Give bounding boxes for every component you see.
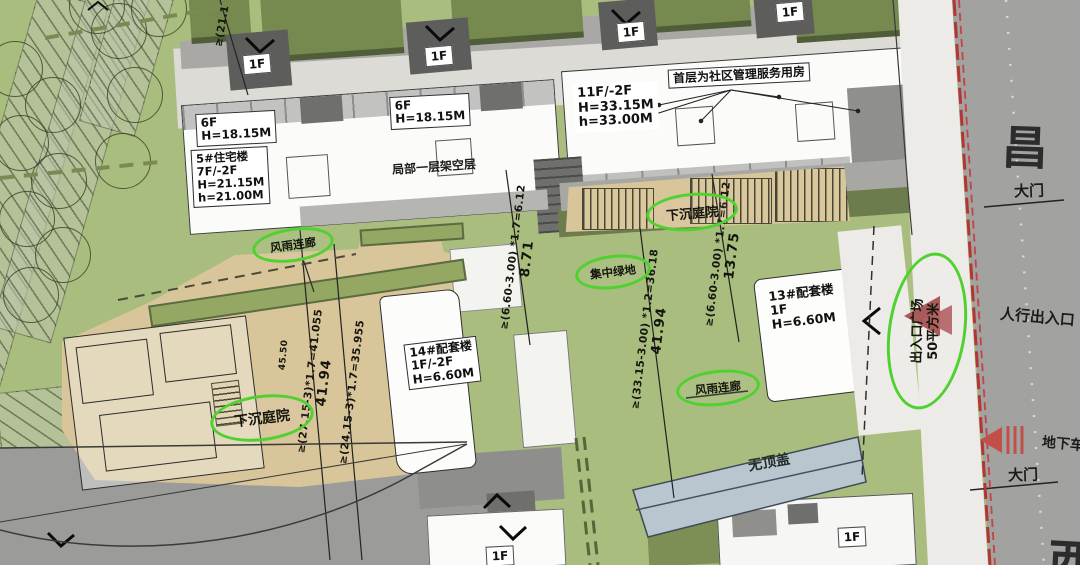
plaza-text: 出入口广场 50平方米	[910, 298, 944, 364]
annotation-rain-corridor: 风雨连廊	[674, 366, 761, 411]
room-outline	[159, 324, 237, 382]
label-1f: 1F	[424, 45, 454, 67]
label-6f-b: 6F H=18.15M	[389, 93, 471, 130]
bottom-right-building	[716, 493, 916, 565]
room-outline	[76, 339, 154, 404]
label-building-11: 11F/-2F H=33.15M h=33.00M	[573, 81, 659, 133]
tree-circle	[107, 67, 163, 123]
gate-label-top: 大门	[1014, 179, 1045, 201]
height: H=18.15M	[395, 110, 466, 127]
roof-patch	[787, 503, 818, 525]
stair-hatch	[582, 188, 654, 230]
floor-text: 1F	[430, 48, 448, 63]
label-building-13: 13#配套楼 1F H=6.60M	[763, 280, 841, 335]
label-1f: 1F	[837, 526, 866, 547]
height2: h=21.00M	[198, 188, 266, 204]
olive-patch	[647, 516, 721, 565]
core-outline	[286, 154, 331, 199]
label-1f: 1F	[242, 53, 272, 75]
walkway	[513, 330, 577, 448]
note-no-roof: 无顶盖	[747, 449, 792, 476]
label-1f: 1F	[775, 1, 805, 23]
core-outline	[675, 106, 716, 147]
tree-circle	[95, 133, 151, 189]
annotation-text: 风雨连廊	[694, 378, 741, 399]
floor-text: 1F	[248, 56, 266, 71]
label-6f-a: 6F H=18.15M	[195, 110, 277, 147]
tree-circle	[3, 267, 59, 323]
height2: h=33.00M	[578, 112, 655, 130]
annotation-central-green: 集中绿地	[573, 250, 653, 293]
roof-patch	[479, 82, 523, 111]
annotation-text: 风雨连廊	[269, 234, 317, 256]
corridor-roof	[360, 222, 465, 246]
gate-label-bottom: 大门	[1008, 463, 1039, 485]
label-building-14: 14#配套楼 1F/-2F H=6.60M	[403, 336, 481, 391]
annotation-text: 集中绿地	[589, 261, 637, 282]
plaza-line2: 50平方米	[926, 298, 943, 363]
height: H=18.15M	[201, 127, 272, 144]
label-building-5: 5#住宅楼 7F/-2F H=21.15M h=21.00M	[191, 146, 271, 207]
label-1f: 1F	[485, 545, 514, 565]
core-outline	[795, 101, 836, 142]
floor-text: 1F	[843, 530, 860, 545]
roof-patch	[732, 509, 777, 537]
label-1f: 1F	[616, 21, 646, 43]
street-name-top: 昌	[1001, 111, 1049, 179]
annotation-text: 下沉庭院	[665, 200, 718, 223]
site-plan: 1F 1F 1F 1F 1F 1F 6F H=18.15M 6F H=18.15…	[0, 0, 1080, 565]
room-outline	[99, 401, 217, 471]
street-name-bottom: 西	[1046, 523, 1080, 565]
floor-text: 1F	[622, 24, 640, 39]
floor-text: 1F	[781, 4, 799, 19]
floor-text: 1F	[491, 549, 508, 564]
annotation-text: 下沉庭院	[233, 405, 291, 432]
roof-patch	[300, 95, 344, 124]
